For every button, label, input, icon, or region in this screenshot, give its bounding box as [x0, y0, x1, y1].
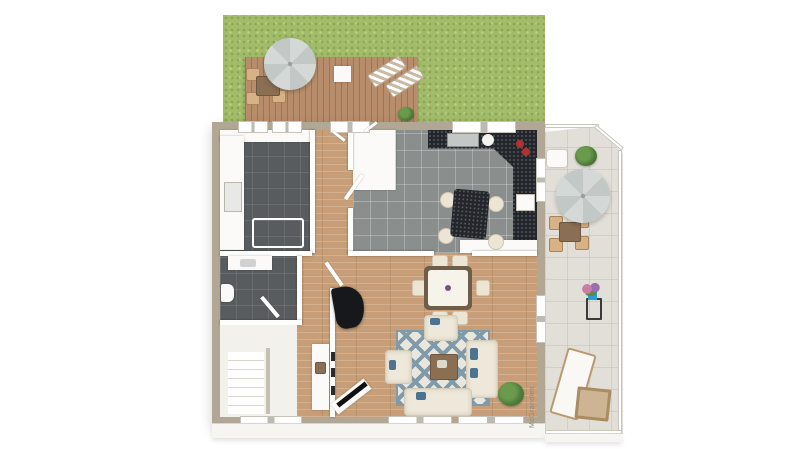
deck-side-table: [334, 66, 351, 82]
wall-utility-hall: [310, 130, 315, 253]
wall-kitchen-living-left: [348, 251, 434, 256]
throw-pillow: [430, 318, 440, 325]
counter-appliance: [516, 194, 535, 211]
utility-floor-unit: [252, 218, 304, 248]
flowers: [581, 282, 601, 296]
stair-handrail: [266, 348, 270, 414]
kitchen-bowl: [482, 134, 494, 146]
terrace-railing-right: [618, 150, 622, 432]
wall-bath-hall: [297, 256, 302, 322]
terrace-umbrella-icon: [556, 169, 610, 223]
table-centerpiece: [445, 285, 451, 291]
watermark-text: McGrandles: [529, 378, 536, 428]
living-room-plant: [498, 382, 524, 406]
hall-sideboard: [312, 344, 329, 410]
toilet: [221, 284, 234, 302]
throw-pillow: [470, 348, 478, 360]
throw-pillow: [389, 360, 396, 370]
vanity-sink: [240, 259, 256, 267]
kitchen-island: [450, 189, 490, 240]
staircase-treads: [228, 352, 264, 414]
throw-pillow: [470, 368, 478, 378]
wall-kitchen-hall-upper: [348, 130, 353, 170]
terrace-table: [559, 222, 581, 242]
deck-plant: [398, 107, 414, 121]
dining-chair: [476, 280, 490, 296]
floorplan-canvas: McGrandles: [0, 0, 800, 449]
hob-burner: [522, 148, 530, 156]
window-kitchen-top: [452, 121, 516, 133]
sideboard-items: [315, 362, 326, 374]
throw-pillow: [416, 392, 426, 400]
terrace-side-table: [574, 386, 611, 421]
island-stool: [488, 196, 504, 212]
terrace-step: [545, 433, 622, 442]
kitchen-sink: [447, 133, 479, 147]
terrace-railing-top: [545, 124, 599, 128]
front-step: [212, 423, 545, 438]
wall-picture-frame: [331, 352, 335, 361]
island-stool: [488, 234, 504, 250]
sofa-bottom: [404, 388, 472, 416]
window-utility: [272, 121, 302, 133]
wall-kitchen-hall-lower: [348, 208, 353, 253]
terrace-plant: [575, 146, 597, 166]
wall-picture-frame: [331, 386, 335, 395]
window-utility: [238, 121, 268, 133]
deck-umbrella-icon: [264, 38, 316, 90]
coffee-table-decor: [437, 360, 447, 368]
terrace-low-chair: [547, 150, 567, 167]
hob-burner: [516, 140, 524, 148]
utility-sink: [224, 182, 242, 212]
wall-kitchen-living-right: [472, 251, 537, 256]
flower-stand: [586, 298, 602, 320]
wall-picture-frame: [331, 368, 335, 377]
